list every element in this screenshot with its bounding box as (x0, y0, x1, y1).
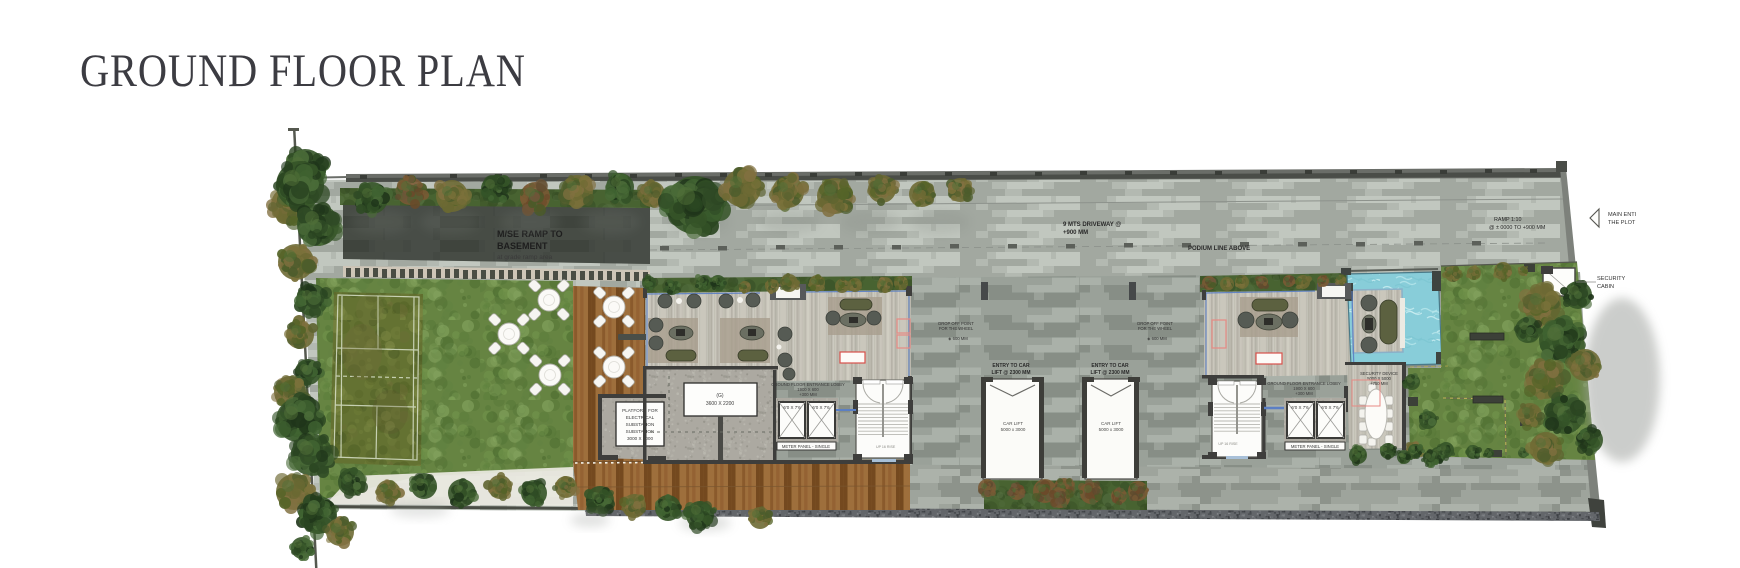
svg-text:+300 MM: +300 MM (799, 392, 817, 397)
svg-text:SECURITY: SECURITY (1597, 276, 1626, 282)
svg-text:PODIUM LINE ABOVE: PODIUM LINE ABOVE (1188, 246, 1250, 252)
svg-text:9 MTS DRIVEWAY @: 9 MTS DRIVEWAY @ (1063, 222, 1121, 228)
svg-text:CABIN: CABIN (1597, 284, 1614, 290)
svg-text:CAR LIFT: CAR LIFT (1101, 421, 1121, 426)
svg-text:BASEMENT: BASEMENT (497, 241, 548, 251)
svg-text:6'0 X 7'6: 6'0 X 7'6 (1321, 405, 1339, 410)
svg-text:(G): (G) (716, 393, 724, 399)
svg-text:ELECTRICAL: ELECTRICAL (626, 415, 655, 420)
svg-text:3600 X 2200: 3600 X 2200 (706, 401, 735, 407)
svg-text:5000 x 3000: 5000 x 3000 (1001, 427, 1026, 432)
svg-text:@ ± 0000 TO +900 MM: @ ± 0000 TO +900 MM (1489, 225, 1546, 231)
svg-text:+750 MM: +750 MM (1370, 381, 1388, 386)
svg-text:RAMP 1:10: RAMP 1:10 (1494, 217, 1521, 223)
svg-text:+300 MM: +300 MM (1295, 391, 1313, 396)
svg-text:6'0 X 7'6: 6'0 X 7'6 (812, 405, 830, 410)
svg-text:FOR THE WHEEL: FOR THE WHEEL (939, 326, 974, 331)
svg-text:◈ 600 MM: ◈ 600 MM (1147, 336, 1167, 341)
svg-text:UP 16 RISE: UP 16 RISE (1218, 442, 1238, 446)
svg-text:6'0 X 7'6: 6'0 X 7'6 (783, 405, 801, 410)
svg-text:MAIN ENTI: MAIN ENTI (1608, 212, 1637, 218)
svg-text:METER PANEL - SINGLE: METER PANEL - SINGLE (1291, 444, 1339, 449)
svg-text:+900 MM: +900 MM (1063, 230, 1088, 236)
svg-text:UP 16 RISE: UP 16 RISE (876, 445, 896, 449)
svg-text:LIFT @ 2300 MM: LIFT @ 2300 MM (1090, 370, 1129, 376)
svg-text:LIFT @ 2300 MM: LIFT @ 2300 MM (991, 370, 1030, 376)
svg-text:FOR THE WHEEL: FOR THE WHEEL (1138, 326, 1173, 331)
svg-text:PLATFORM FOR: PLATFORM FOR (622, 408, 658, 413)
svg-text:SUBSTATION: SUBSTATION (626, 422, 655, 427)
svg-text:6'0 X 7'6: 6'0 X 7'6 (1291, 405, 1309, 410)
svg-text:METER PANEL - SINGLE: METER PANEL - SINGLE (782, 444, 830, 449)
svg-text:5000 x 3000: 5000 x 3000 (1099, 427, 1124, 432)
svg-text:◈ 600 MM: ◈ 600 MM (948, 336, 968, 341)
svg-text:ENTRY TO CAR: ENTRY TO CAR (992, 363, 1030, 369)
svg-text:CAR LIFT: CAR LIFT (1003, 421, 1023, 426)
svg-text:at grade ramp area: at grade ramp area (497, 254, 553, 261)
svg-text:THE PLOT: THE PLOT (1608, 220, 1636, 226)
svg-text:ENTRY TO CAR: ENTRY TO CAR (1091, 363, 1129, 369)
svg-text:3000 X 3000: 3000 X 3000 (627, 436, 654, 441)
